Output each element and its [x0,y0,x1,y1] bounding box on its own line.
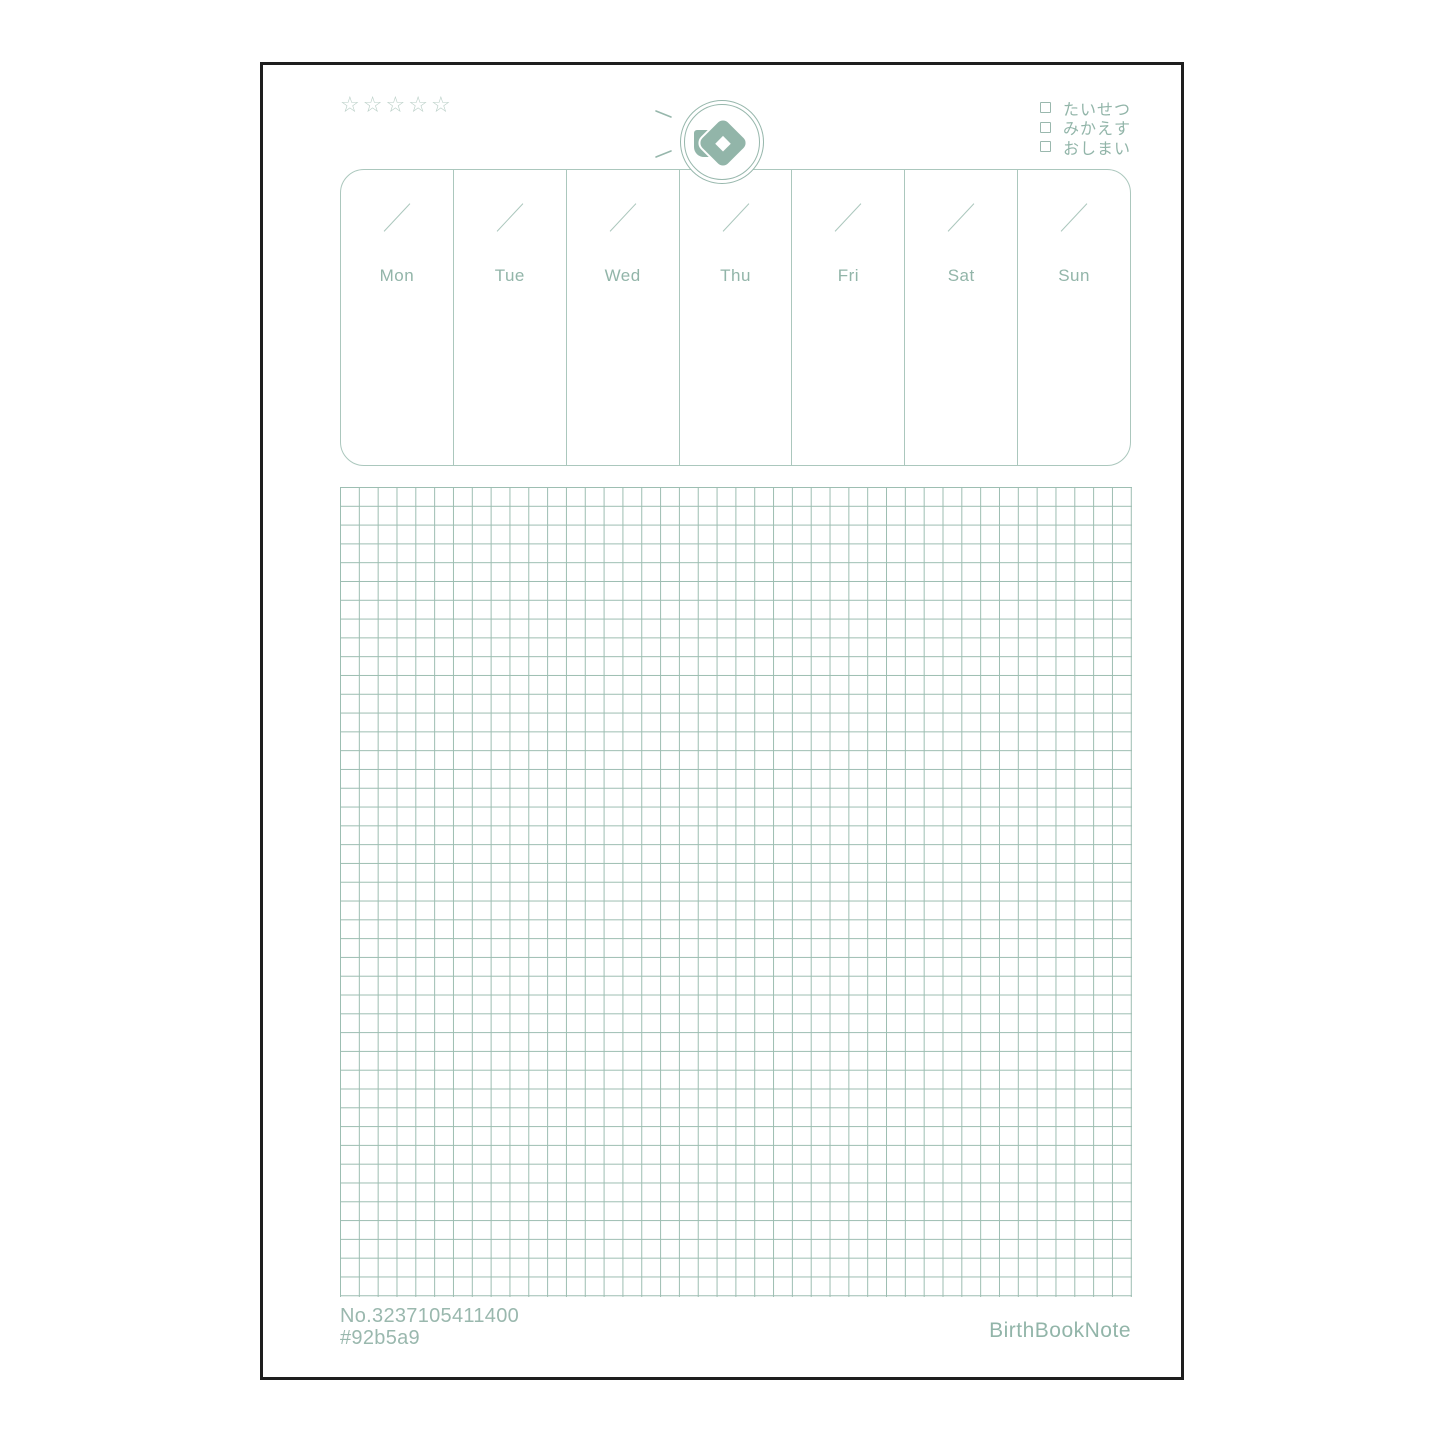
day-label: Thu [680,266,792,286]
grid-paper [340,487,1132,1297]
spark-lines-icon [654,107,676,161]
day-label: Sun [1018,266,1130,286]
checklist: たいせつ みかえす おしまい [1040,98,1131,157]
week-row: Mon Tue Wed Thu Fri Sat Sun [340,169,1131,466]
star-icon: ☆ [431,92,451,118]
checkbox-icon [1040,141,1051,152]
star-icon: ☆ [408,92,428,118]
day-label: Wed [567,266,679,286]
date-slash-icon [1061,203,1088,231]
day-cell-tue: Tue [453,170,566,465]
day-cell-wed: Wed [566,170,679,465]
notebook-page: ☆ ☆ ☆ ☆ ☆ たいせつ みかえす おしまい Mon [260,62,1184,1380]
brand-logo [680,100,764,184]
day-label: Sat [905,266,1017,286]
day-cell-sat: Sat [904,170,1017,465]
brand-name: BirthBookNote [989,1319,1131,1343]
day-cell-mon: Mon [341,170,453,465]
date-slash-icon [384,203,411,231]
date-slash-icon [496,203,523,231]
product-info: No.3237105411400 #92b5a9 [340,1305,519,1349]
day-label: Fri [792,266,904,286]
gem-diamond-icon [695,115,752,172]
checklist-label: おしまい [1063,135,1131,159]
product-color-code: #92b5a9 [340,1327,519,1349]
product-number: No.3237105411400 [340,1305,519,1327]
day-cell-thu: Thu [679,170,792,465]
star-icon: ☆ [363,92,383,118]
date-slash-icon [835,203,862,231]
checkbox-icon [1040,122,1051,133]
rating-stars: ☆ ☆ ☆ ☆ ☆ [340,92,451,118]
checklist-item: おしまい [1040,137,1131,157]
date-slash-icon [948,203,975,231]
day-cell-sun: Sun [1017,170,1130,465]
star-icon: ☆ [385,92,405,118]
checkbox-icon [1040,102,1051,113]
date-slash-icon [722,203,749,231]
day-label: Tue [454,266,566,286]
gem-hole [715,135,731,151]
day-label: Mon [341,266,453,286]
day-cell-fri: Fri [791,170,904,465]
star-icon: ☆ [340,92,360,118]
date-slash-icon [609,203,636,231]
